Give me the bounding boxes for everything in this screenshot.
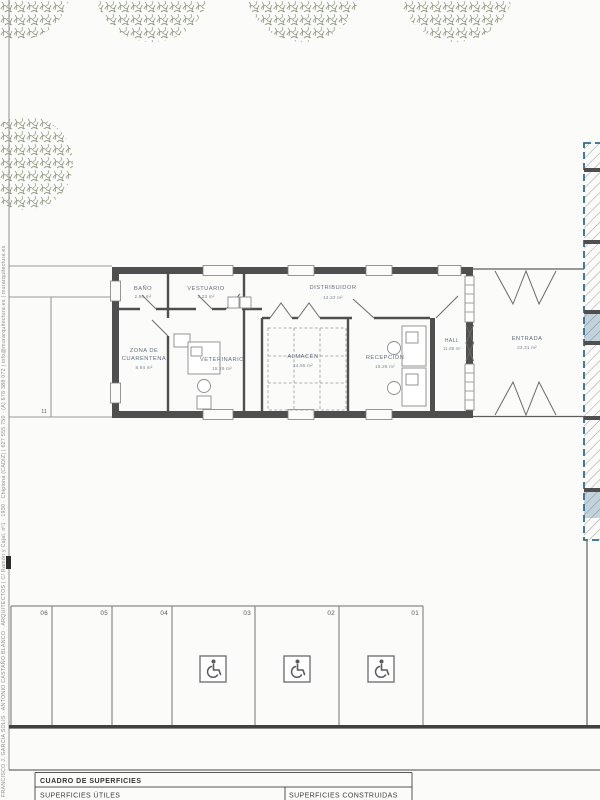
wheelchair-icon: [200, 656, 226, 682]
room-label-zona-cuarentena-2: CUARENTENA: [122, 356, 166, 362]
parking-stall-06: 06: [40, 610, 48, 617]
title-block: CUADRO DE SUPERFICIES SUPERFICIES ÚTILES…: [9, 770, 600, 800]
parking-stall-01: 01: [411, 610, 419, 617]
site-plan-drawing: 11: [0, 0, 600, 800]
parking-stall-05: 05: [100, 610, 108, 617]
tree-canopy: [94, 0, 210, 42]
room-area-distribuidor: 12.22 m²: [323, 295, 343, 300]
wheelchair-icons: [200, 656, 394, 682]
parking-stall-02: 02: [327, 610, 335, 617]
tree-row: [0, 0, 514, 210]
tree-canopy: [0, 0, 70, 40]
furniture: [174, 297, 426, 409]
site-plot-number: 11: [41, 409, 47, 415]
parking-area: 06 05 04 03 02 01: [9, 606, 600, 729]
room-area-entrada: 23.31 m²: [517, 345, 537, 350]
tree-canopy: [245, 0, 361, 42]
title-block-col-built: SUPERFICIES CONSTRUIDAS: [289, 793, 398, 800]
room-area-zona-cuarentena: 8.94 m²: [136, 365, 153, 370]
architect-credits-vertical: FRANCISCO J. GARCIA SOLIS · ANTONIO CAST…: [0, 245, 7, 797]
room-label-distribuidor: DISTRIBUIDOR: [310, 285, 357, 291]
title-block-heading: CUADRO DE SUPERFICIES: [40, 778, 142, 785]
room-label-recepcion: RECEPCIÓN: [366, 354, 405, 361]
room-label-veterinario: VETERINARIO: [200, 357, 244, 363]
tree-canopy: [398, 0, 514, 42]
wheelchair-icon: [368, 656, 394, 682]
room-label-hall: HALL: [445, 338, 459, 344]
entrada-boundaries: [473, 269, 584, 417]
room-label-almacen: ALMACÉN: [287, 353, 318, 360]
parking-stall-04: 04: [160, 610, 168, 617]
site-boundary-lines: [6, 0, 112, 770]
room-label-zona-cuarentena-1: ZONA DE: [130, 348, 159, 354]
parking-curb-line: [9, 725, 600, 729]
room-area-vestuario: 3.23 m²: [198, 294, 215, 299]
room-area-almacen: 14.65 m²: [293, 363, 313, 368]
parking-stall-03: 03: [243, 610, 251, 617]
room-area-recepcion: 15.26 m²: [375, 364, 395, 369]
hatched-landscape-strip: [584, 143, 600, 725]
wheelchair-icon: [284, 656, 310, 682]
title-block-col-useful: SUPERFICIES ÚTILES: [40, 791, 120, 800]
room-area-hall: 11.88 m²: [443, 346, 461, 351]
room-label-bano: BAÑO: [134, 285, 152, 292]
room-label-vestuario: VESTUARIO: [187, 286, 225, 292]
shelving-dashed-grid: [268, 328, 346, 410]
drawing-sheet: 11: [0, 0, 600, 800]
room-area-bano: 2.96 m²: [135, 294, 152, 299]
room-area-veterinario: 15.26 m²: [212, 366, 232, 371]
building-interior-walls: [118, 267, 430, 412]
tree-canopy: [0, 116, 73, 210]
room-label-entrada: ENTRADA: [512, 336, 543, 342]
